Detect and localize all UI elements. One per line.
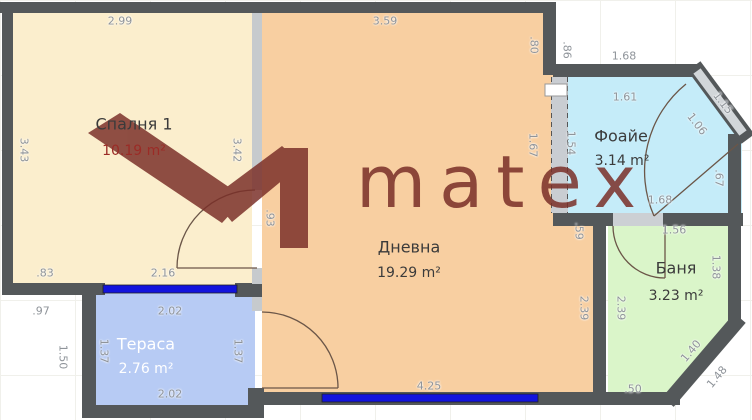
room-area-bath: 3.23 m² <box>649 288 704 304</box>
dimension-label: 1.15 <box>710 89 735 116</box>
dimension-label: 1.67 <box>527 133 540 158</box>
floor-plan: matex Спалня 110.19 m²Дневна19.29 m²Фоай… <box>0 0 752 420</box>
dimension-label: 2.39 <box>578 296 591 321</box>
dimension-label: 1.56 <box>662 224 687 237</box>
dimension-label: 4.25 <box>417 380 442 393</box>
dimension-label: 1.68 <box>648 194 673 207</box>
dimension-label: 1.40 <box>678 337 704 364</box>
dimension-label: .59 <box>573 222 586 240</box>
room-area-terrace: 2.76 m² <box>119 361 174 377</box>
dimension-label: 1.48 <box>704 363 730 390</box>
room-label-living: Дневна <box>378 238 441 257</box>
room-area-living: 19.29 m² <box>377 265 441 281</box>
dimension-label: 2.02 <box>158 305 183 318</box>
dimension-label: 3.43 <box>18 138 31 163</box>
dimension-label: .86 <box>561 41 574 59</box>
dimension-label: .80 <box>528 36 541 54</box>
dimension-label: 1.37 <box>232 339 245 364</box>
room-label-foyer: Фоайе <box>594 127 648 146</box>
dimension-label: 2.16 <box>151 267 176 280</box>
dimension-label: 1.38 <box>710 255 723 280</box>
dimension-label: .83 <box>36 267 54 280</box>
dimension-label: 1.50 <box>57 345 70 370</box>
dimension-label: 1.68 <box>612 50 637 63</box>
dimension-label: 2.39 <box>615 296 628 321</box>
dimension-label: 1.54 <box>565 131 578 156</box>
room-area-foyer: 3.14 m² <box>595 153 650 169</box>
dimension-label: 1.37 <box>98 339 111 364</box>
room-area-bedroom: 10.19 m² <box>102 143 166 159</box>
dimension-label: 1.61 <box>613 91 638 104</box>
dimension-label: 3.42 <box>231 138 244 163</box>
room-label-terrace: Тераса <box>117 335 175 354</box>
room-label-bedroom: Спалня 1 <box>95 115 172 134</box>
dimension-label: .97 <box>32 305 50 318</box>
dimension-label: 3.59 <box>373 15 398 28</box>
dimension-label: .93 <box>264 209 277 227</box>
dimension-label: 2.02 <box>158 388 183 401</box>
labels-layer: Спалня 110.19 m²Дневна19.29 m²Фоайе3.14 … <box>0 0 752 420</box>
room-label-bath: Баня <box>656 259 697 278</box>
dimension-label: 1.06 <box>684 110 709 137</box>
dimension-label: 2.99 <box>108 15 133 28</box>
dimension-label: .50 <box>624 383 642 396</box>
dimension-label: .67 <box>713 169 726 187</box>
